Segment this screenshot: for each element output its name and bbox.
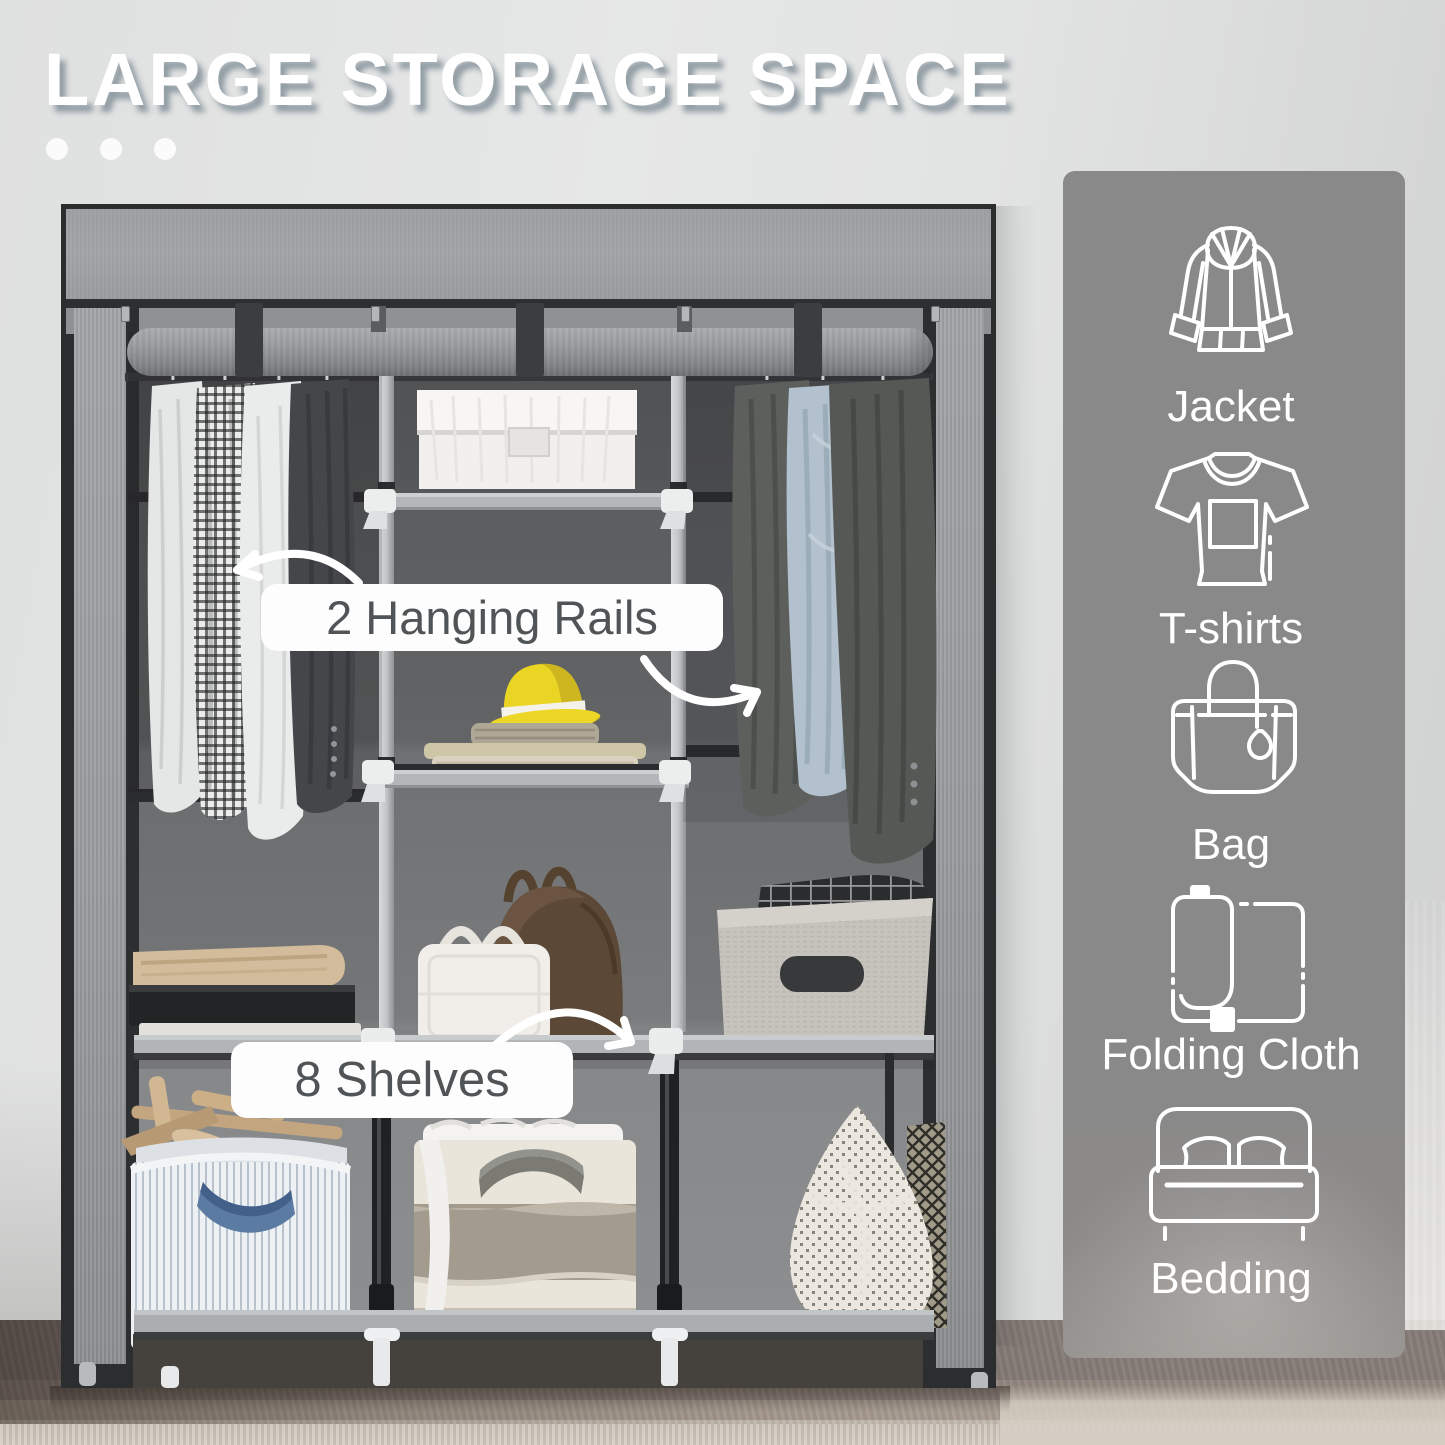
svg-text:T-shirts: T-shirts [1159,604,1303,653]
svg-text:Jacket: Jacket [1167,382,1294,431]
svg-text:Bag: Bag [1192,820,1270,869]
svg-text:Folding Cloth: Folding Cloth [1101,1030,1360,1079]
svg-text:Bedding: Bedding [1150,1254,1311,1303]
